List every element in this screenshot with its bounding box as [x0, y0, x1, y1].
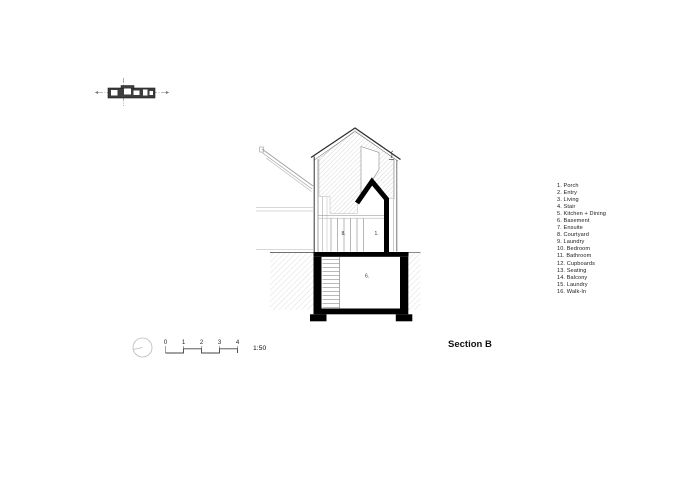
legend-item: 14. Balcony [557, 275, 606, 282]
legend-item: 12. Cupboards [557, 261, 606, 268]
legend-item: 2. Entry [557, 190, 606, 197]
legend-item: 5. Kitchen + Dining [557, 211, 606, 218]
ground-hatch-right [408, 253, 421, 310]
legend-item: 16. Walk-In [557, 289, 606, 296]
basement-wall-left [314, 257, 322, 310]
north-indicator-needle [133, 348, 143, 350]
key-plan-bump [121, 86, 134, 89]
scale-ratio-label: 1:50 [253, 345, 266, 352]
footing-left [310, 314, 327, 321]
key-plan-room [150, 91, 154, 95]
basement-floor-slab [314, 309, 409, 315]
scale-tick-2: 2 [200, 340, 204, 346]
basement-wall-right [400, 257, 408, 310]
room-label-courtyard: 8. [342, 231, 346, 237]
key-plan-room [111, 90, 118, 96]
ground-slab-cut [314, 252, 409, 257]
legend-item: 8. Courtyard [557, 232, 606, 239]
key-plan-room [134, 91, 140, 96]
scale-bar-segments [166, 349, 238, 353]
room-label-basement: 6. [365, 274, 369, 280]
cut-line-arrow-right [166, 91, 169, 94]
scale-tick-4: 4 [236, 340, 240, 346]
room-legend: 1. Porch 2. Entry 3. Living 4. Stair 5. … [557, 183, 606, 296]
scale-bar: 0 1 2 3 4 1:50 [133, 338, 266, 357]
drawing-title: Section B [448, 339, 492, 350]
key-plan [95, 78, 169, 106]
legend-item: 7. Ensuite [557, 225, 606, 232]
room-label-porch: 1. [375, 231, 379, 237]
legend-item: 4. Stair [557, 204, 606, 211]
drawing-sheet: 8. 1. 6. 0 1 2 3 4 1:50 1. Porch [0, 0, 700, 495]
scale-tick-1: 1 [182, 340, 186, 346]
legend-item: 1. Porch [557, 183, 606, 190]
legend-item: 15. Laundry [557, 282, 606, 289]
legend-item: 9. Laundry [557, 239, 606, 246]
scale-tick-0: 0 [164, 340, 168, 346]
scale-tick-3: 3 [218, 340, 222, 346]
cut-line-arrow-left [95, 91, 98, 94]
building-section: 8. 1. 6. [270, 128, 421, 321]
legend-item: 3. Living [557, 197, 606, 204]
legend-item: 11. Bathroom [557, 253, 606, 260]
legend-item: 10. Bedroom [557, 246, 606, 253]
key-plan-room [124, 89, 131, 95]
legend-item: 13. Seating [557, 268, 606, 275]
basement-stair [323, 257, 340, 309]
footing-right [396, 314, 413, 321]
legend-item: 6. Basement [557, 218, 606, 225]
key-plan-room [143, 90, 148, 96]
slat-screen [331, 218, 364, 251]
ground-hatch-left [270, 253, 314, 310]
